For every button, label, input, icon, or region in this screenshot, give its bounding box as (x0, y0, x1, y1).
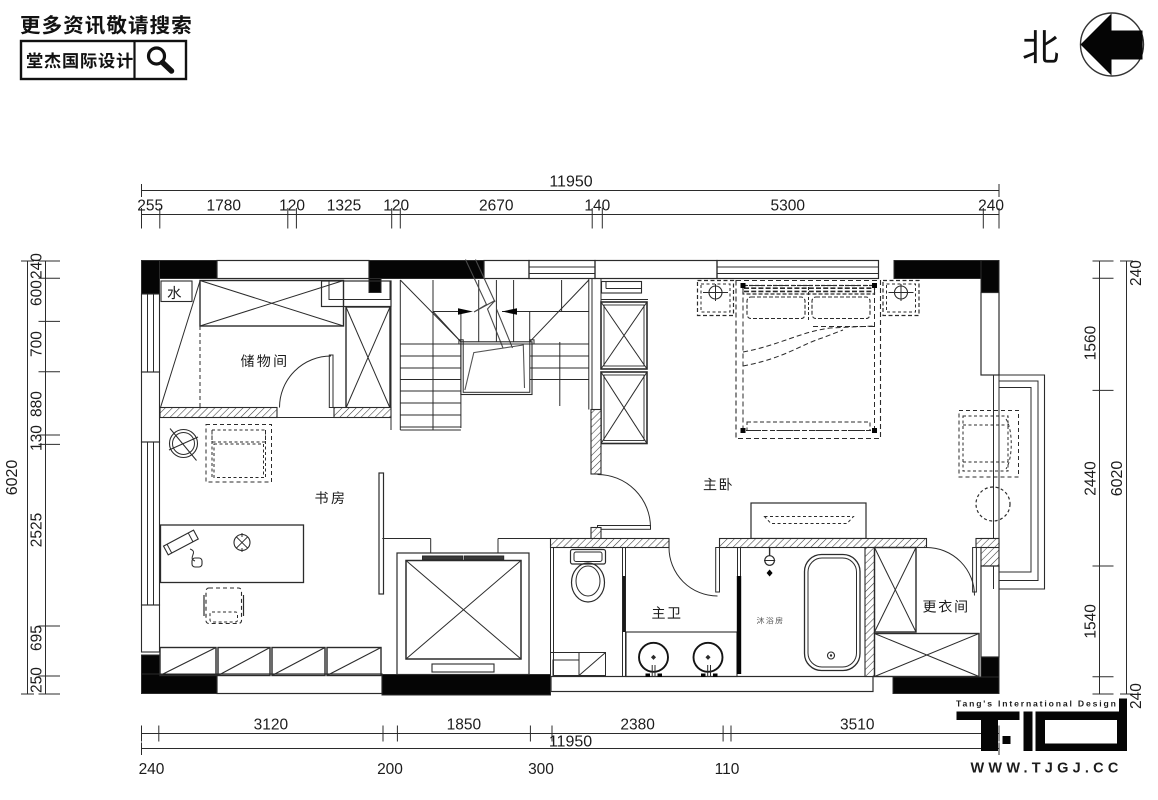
svg-text:880: 880 (29, 391, 46, 417)
svg-text:6020: 6020 (4, 460, 21, 496)
svg-text:3510: 3510 (840, 717, 875, 734)
svg-text:11950: 11950 (549, 734, 592, 751)
svg-text:300: 300 (528, 761, 554, 778)
svg-text:1850: 1850 (447, 717, 482, 734)
svg-text:200: 200 (377, 761, 403, 778)
svg-text:240: 240 (139, 761, 165, 778)
svg-text:600: 600 (29, 280, 46, 306)
svg-text:240: 240 (1128, 683, 1145, 709)
svg-text:130: 130 (29, 425, 46, 451)
svg-text:1780: 1780 (207, 198, 242, 215)
svg-text:120: 120 (383, 198, 409, 215)
svg-text:2525: 2525 (29, 513, 46, 547)
svg-text:695: 695 (29, 625, 46, 651)
svg-text:11950: 11950 (549, 174, 592, 191)
svg-text:700: 700 (29, 331, 46, 357)
svg-text:6020: 6020 (1109, 461, 1126, 497)
svg-text:WWW.TJGJ.CC: WWW.TJGJ.CC (971, 761, 1121, 777)
svg-text:3120: 3120 (254, 717, 289, 734)
svg-text:240: 240 (978, 198, 1004, 215)
svg-text:240: 240 (1128, 260, 1145, 286)
svg-text:110: 110 (715, 761, 740, 778)
svg-text:5300: 5300 (771, 198, 806, 215)
svg-text:1540: 1540 (1083, 604, 1100, 639)
svg-text:1325: 1325 (327, 198, 361, 215)
svg-text:240: 240 (29, 253, 46, 279)
svg-text:1560: 1560 (1083, 325, 1100, 360)
svg-text:2670: 2670 (479, 198, 514, 215)
svg-text:2440: 2440 (1083, 461, 1100, 496)
svg-text:250: 250 (29, 667, 46, 693)
svg-text:255: 255 (137, 198, 163, 215)
svg-text:120: 120 (279, 198, 305, 215)
svg-text:Tang's International Design: Tang's International Design (956, 699, 1117, 709)
svg-text:140: 140 (584, 198, 610, 215)
svg-text:2380: 2380 (620, 717, 655, 734)
